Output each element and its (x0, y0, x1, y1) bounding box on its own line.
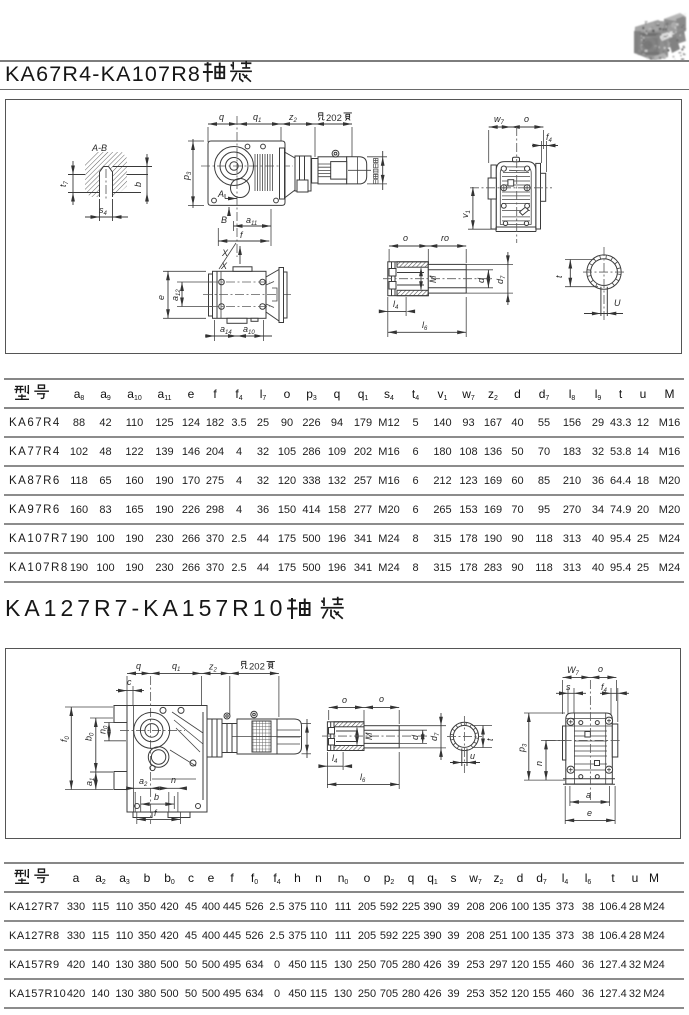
svg-text:b: b (154, 792, 159, 802)
svg-text:q1: q1 (253, 112, 261, 124)
svg-text:l4: l4 (332, 753, 338, 765)
svg-text:l6: l6 (360, 772, 366, 784)
svg-text:p3: p3 (181, 171, 193, 181)
svg-text:b: b (133, 182, 143, 187)
svg-text:o: o (342, 695, 347, 705)
svg-text:202: 202 (249, 662, 265, 673)
svg-text:A-B: A-B (91, 143, 107, 153)
svg-text:w7: w7 (494, 114, 505, 126)
svg-text:c: c (127, 677, 132, 687)
svg-text:ro: ro (441, 233, 449, 243)
svg-text:t: t (485, 738, 495, 741)
svg-text:q1: q1 (172, 661, 180, 673)
svg-text:o: o (598, 664, 603, 674)
svg-text:z2: z2 (208, 662, 218, 674)
svg-text:z2: z2 (288, 112, 298, 124)
svg-text:b0: b0 (84, 732, 96, 741)
svg-text:o: o (403, 233, 408, 243)
svg-text:f4: f4 (546, 132, 553, 144)
svg-text:a1: a1 (84, 778, 96, 786)
svg-text:f: f (240, 230, 244, 240)
svg-text:d7: d7 (429, 732, 441, 741)
svg-text:d7: d7 (495, 275, 507, 284)
svg-text:a: a (586, 790, 591, 800)
svg-text:t: t (554, 275, 564, 278)
svg-text:n: n (171, 775, 176, 785)
svg-text:202: 202 (326, 113, 342, 124)
svg-text:t7: t7 (58, 180, 70, 187)
svg-text:s4: s4 (99, 205, 108, 217)
svg-text:a14: a14 (220, 324, 232, 336)
svg-text:o: o (379, 694, 384, 704)
svg-text:a12: a12 (170, 289, 182, 301)
svg-text:p3: p3 (517, 743, 529, 753)
svg-text:d: d (410, 734, 420, 740)
svg-text:l6: l6 (422, 320, 428, 332)
svg-text:A: A (217, 189, 224, 199)
svg-text:l4: l4 (393, 299, 399, 311)
svg-text:a11: a11 (246, 215, 257, 227)
svg-text:o: o (524, 114, 529, 124)
svg-text:q: q (136, 661, 141, 671)
svg-text:v1: v1 (460, 210, 472, 218)
svg-text:X: X (221, 248, 229, 258)
svg-text:f0: f0 (59, 735, 71, 742)
svg-text:s: s (566, 682, 571, 692)
svg-text:e: e (587, 808, 592, 818)
svg-text:d: d (476, 277, 486, 283)
svg-text:q: q (219, 112, 224, 122)
svg-text:W7: W7 (567, 665, 580, 677)
svg-text:e: e (156, 295, 166, 300)
svg-text:a10: a10 (243, 324, 255, 336)
svg-text:n: n (534, 761, 544, 766)
svg-text:U: U (614, 298, 621, 308)
svg-text:B: B (221, 215, 227, 225)
svg-text:u: u (470, 751, 475, 761)
